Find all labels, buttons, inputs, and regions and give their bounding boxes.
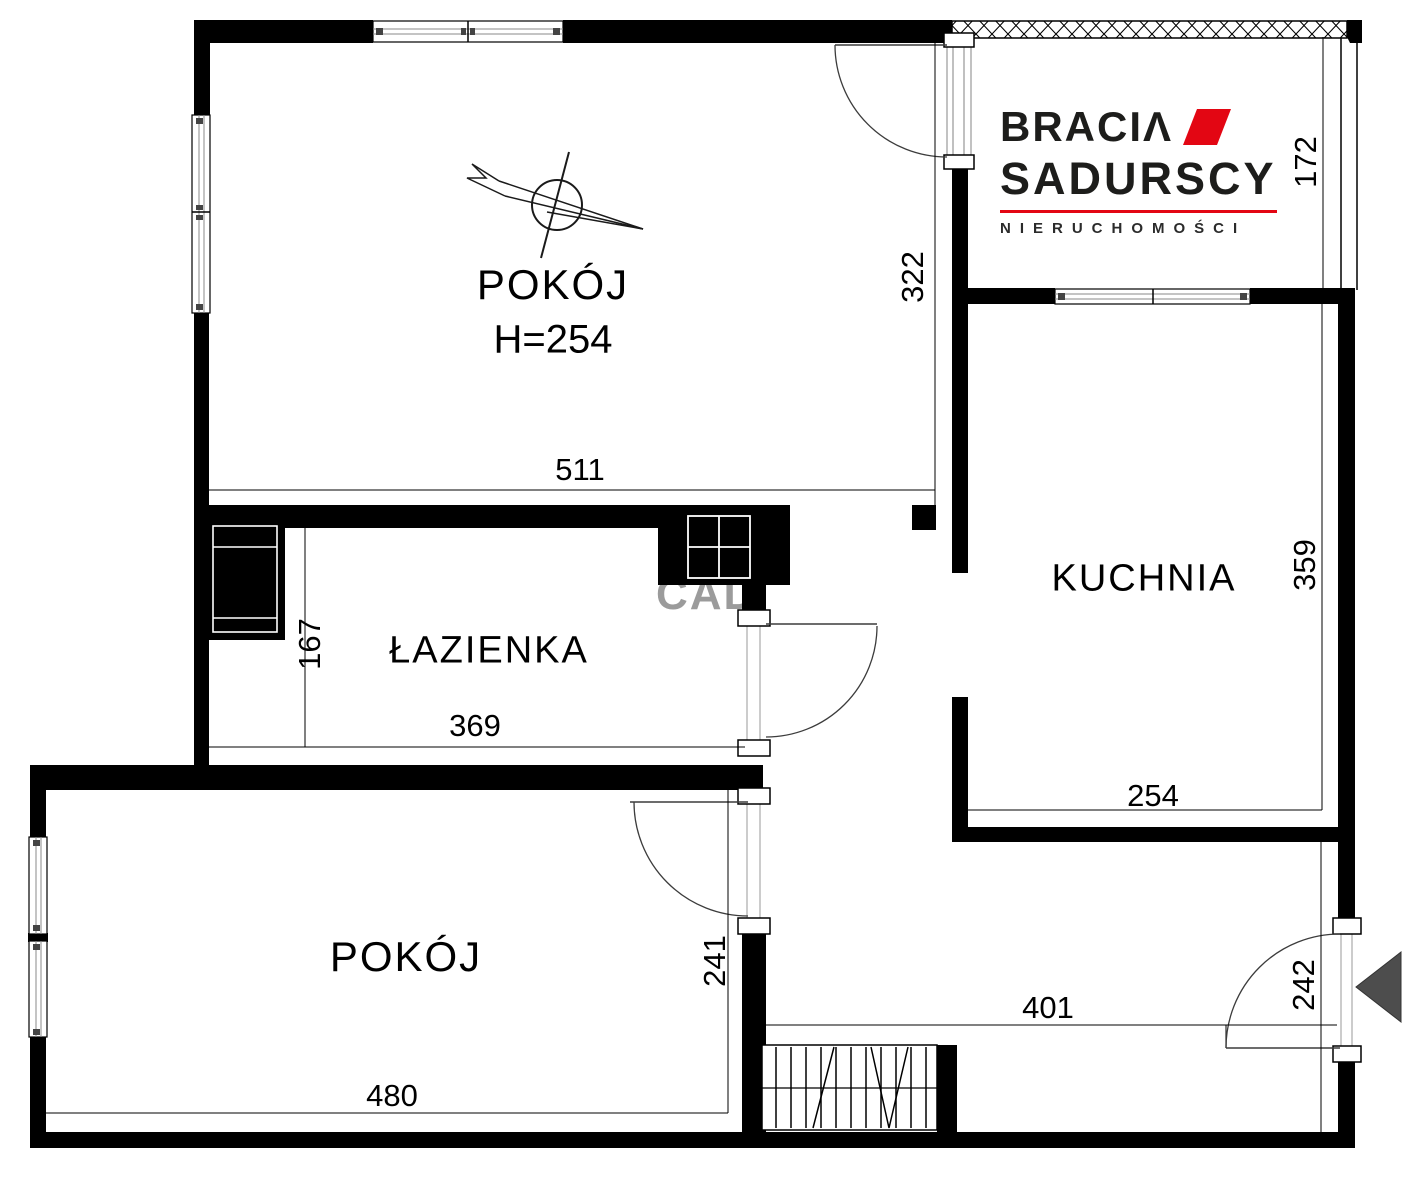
window-top-room-west: [192, 115, 210, 313]
window-bottom-room-west-1: [29, 837, 47, 934]
entrance-door-swing: [1226, 934, 1340, 1048]
dim-hall-width: 401: [1022, 990, 1074, 1026]
room-label-lazienka: ŁAZIENKA: [389, 630, 589, 673]
logo-rule: [1000, 210, 1277, 213]
dim-bathroom-depth: 167: [292, 618, 328, 670]
entrance-arrow-icon: [1356, 952, 1401, 1022]
dim-kitchen-depth: 359: [1287, 539, 1323, 591]
dim-balcony-depth: 172: [1288, 136, 1324, 188]
window-bottom-room-west-2: [29, 941, 47, 1037]
stairs: [762, 1045, 937, 1130]
ceiling-height-note: H=254: [494, 318, 613, 363]
bathroom-door-swing: [766, 624, 877, 737]
balcony-door-swing: [835, 45, 947, 157]
logo-mark-icon: [1183, 109, 1231, 145]
dim-bathroom-width: 369: [449, 708, 501, 744]
logo-brand-line2: SADURSCY: [1000, 156, 1282, 201]
room-label-bottom-pokoj: POKÓJ: [330, 933, 482, 981]
dim-top-room-width: 511: [555, 452, 604, 488]
logo-brand-line1: BRACIΛ: [1000, 106, 1173, 148]
floor-plan: CAD: [0, 0, 1410, 1200]
room-label-kuchnia: KUCHNIA: [1051, 558, 1236, 601]
north-arrow-icon: [467, 152, 643, 258]
agency-logo: BRACIΛ SADURSCY NIERUCHOMOŚCI: [1000, 106, 1282, 237]
window-top-room-north: [373, 21, 563, 42]
room-label-top-pokoj: POKÓJ: [477, 261, 629, 309]
dim-entrance-wall: 242: [1286, 959, 1322, 1011]
bottom-room-door-swing: [630, 802, 748, 916]
window-kitchen-balcony: [1055, 289, 1250, 304]
dim-top-room-depth: 322: [895, 251, 931, 303]
dim-bottom-room-width: 480: [366, 1078, 418, 1114]
dim-kitchen-width: 254: [1127, 778, 1179, 814]
dim-hall-door-depth: 241: [697, 935, 733, 987]
logo-tagline: NIERUCHOMOŚCI: [1000, 220, 1282, 237]
